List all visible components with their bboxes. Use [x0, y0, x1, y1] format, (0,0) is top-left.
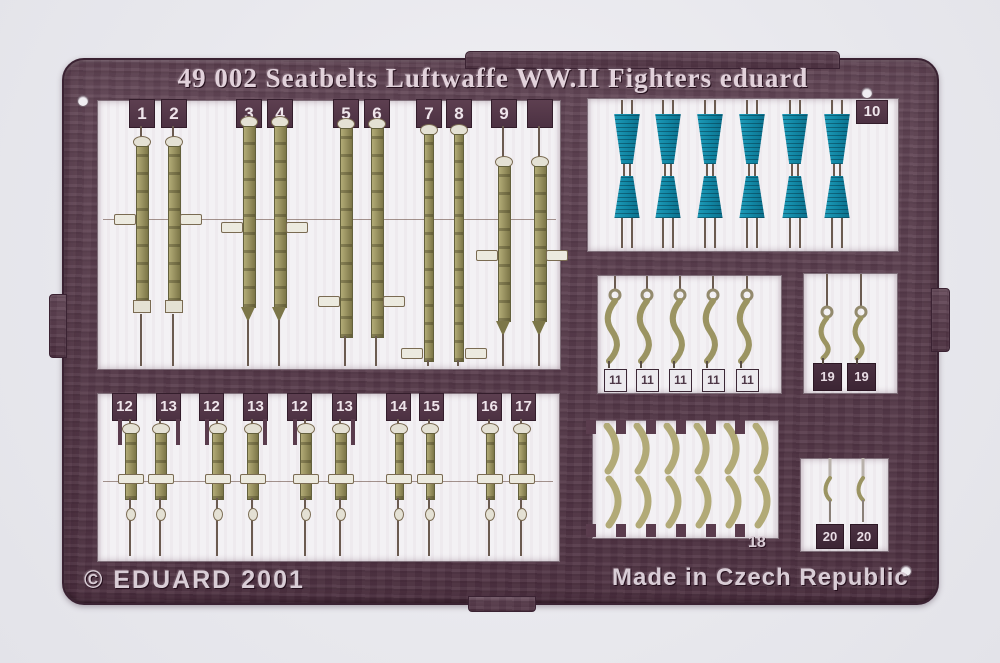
- pe-part-shape: [401, 348, 423, 359]
- part-number-tag: 12: [112, 393, 137, 421]
- pe-part-shape: [216, 498, 218, 556]
- pe-part-shape: [293, 474, 319, 484]
- pe-part-shape: [756, 218, 758, 248]
- pe-part-shape: [427, 360, 429, 366]
- part-number-label: 20: [816, 524, 844, 549]
- pe-part-shape: [534, 166, 547, 322]
- pe-part-shape: [221, 222, 243, 233]
- pe-part-shape: [660, 423, 686, 529]
- pe-part-shape: [600, 423, 626, 529]
- pe-part-shape: [180, 214, 202, 225]
- part-number-label: 11: [736, 369, 759, 392]
- part-number-tag: 12: [287, 393, 312, 421]
- pe-part-shape: [670, 164, 672, 176]
- pe-part-shape: [336, 508, 346, 521]
- pe-part-shape: [133, 300, 151, 313]
- pe-part-shape: [672, 100, 674, 114]
- pe-part-shape: [667, 276, 693, 368]
- pe-part-shape: [248, 508, 258, 521]
- part-number-tag: 13: [243, 393, 268, 421]
- pe-part-shape: [746, 218, 748, 248]
- pe-part-shape: [425, 508, 435, 521]
- part-number-label: 11: [669, 369, 692, 392]
- pe-part-shape: [502, 126, 504, 157]
- pe-part-shape: [634, 276, 660, 368]
- pe-part-shape: [371, 128, 384, 338]
- pe-part-shape: [383, 296, 405, 307]
- pe-part-shape: [247, 320, 249, 366]
- pe-part-shape: [428, 498, 430, 556]
- pe-part-shape: [129, 498, 131, 556]
- pe-part-shape: [426, 433, 435, 500]
- pe-part-shape: [286, 222, 308, 233]
- pe-part-shape: [520, 498, 522, 556]
- copyright-text: © EDUARD 2001: [84, 566, 305, 595]
- part-number-label: 18: [748, 534, 766, 552]
- pe-part-shape: [278, 320, 280, 366]
- fret-tab-left: [49, 294, 67, 358]
- pe-part-shape: [712, 164, 714, 176]
- pe-part-shape: [339, 498, 341, 556]
- part-number-label: 11: [636, 369, 659, 392]
- rivet-hole: [861, 87, 873, 99]
- pe-part-shape: [247, 433, 259, 500]
- pe-part-shape: [328, 474, 354, 484]
- part-number-label: 11: [702, 369, 725, 392]
- pe-part-shape: [118, 474, 144, 484]
- pe-part-shape: [457, 360, 459, 366]
- pe-part-shape: [351, 419, 355, 445]
- pe-part-shape: [700, 276, 726, 368]
- pe-part-shape: [853, 458, 873, 522]
- pe-part-shape: [706, 524, 716, 537]
- part-number-tag: 1: [129, 99, 155, 128]
- pe-part-shape: [517, 508, 527, 521]
- part-number-label: 19: [813, 363, 842, 391]
- part-number-tag: 13: [156, 393, 181, 421]
- pe-part-shape: [676, 420, 686, 434]
- pe-part-shape: [586, 524, 596, 537]
- pe-part-shape: [126, 508, 136, 521]
- pe-part-shape: [735, 420, 745, 434]
- pe-part-shape: [205, 474, 231, 484]
- pe-part-shape: [720, 423, 746, 529]
- pe-part-shape: [646, 524, 656, 537]
- pe-part-shape: [814, 274, 840, 364]
- pe-part-shape: [397, 498, 399, 556]
- product-photo-stage: 49 002 Seatbelts Luftwaffe WW.II Fighter…: [0, 0, 1000, 663]
- part-number-tag: 9: [491, 99, 517, 128]
- pe-part-shape: [646, 420, 656, 434]
- pe-part-shape: [518, 433, 527, 500]
- pe-part-shape: [243, 126, 256, 308]
- part-number-label: 20: [850, 524, 878, 549]
- pe-part-shape: [791, 164, 793, 176]
- pe-part-shape: [690, 423, 716, 529]
- pe-part-shape: [159, 498, 161, 556]
- pe-part-shape: [344, 336, 346, 366]
- pe-part-shape: [714, 218, 716, 248]
- pe-part-shape: [841, 218, 843, 248]
- pe-part-shape: [318, 296, 340, 307]
- pe-part-shape: [140, 314, 142, 366]
- pe-part-shape: [662, 100, 664, 114]
- pe-part-shape: [714, 100, 716, 114]
- pe-part-shape: [502, 334, 504, 366]
- pe-part-shape: [820, 458, 840, 522]
- pe-part-shape: [394, 508, 404, 521]
- pe-part-shape: [454, 134, 464, 362]
- pe-part-shape: [664, 164, 666, 176]
- pe-part-shape: [304, 498, 306, 556]
- pe-part-shape: [734, 276, 760, 368]
- pe-part-shape: [509, 474, 535, 484]
- pe-part-shape: [263, 419, 267, 445]
- part-number-tag: 2: [161, 99, 187, 128]
- pe-part-shape: [476, 250, 498, 261]
- pe-part-shape: [424, 134, 434, 362]
- pe-part-shape: [704, 100, 706, 114]
- pe-part-shape: [621, 100, 623, 114]
- part-number-tag: 12: [199, 393, 224, 421]
- pe-part-shape: [136, 146, 149, 302]
- pe-part-shape: [301, 508, 311, 521]
- pe-part-shape: [831, 100, 833, 114]
- pe-part-shape: [631, 218, 633, 248]
- pe-part-shape: [839, 164, 841, 176]
- rivet-hole: [77, 95, 89, 107]
- pe-part-shape: [386, 474, 412, 484]
- part-number-tag: 13: [332, 393, 357, 421]
- pe-part-shape: [676, 524, 686, 537]
- part-number-tag: 14: [386, 393, 411, 421]
- pe-part-shape: [831, 218, 833, 248]
- pe-part-shape: [538, 126, 540, 157]
- pe-part-shape: [623, 164, 625, 176]
- pe-part-shape: [546, 250, 568, 261]
- pe-part-shape: [125, 433, 137, 500]
- pe-part-shape: [375, 336, 377, 366]
- fret-tab-right: [931, 288, 950, 352]
- sheet-title: 49 002 Seatbelts Luftwaffe WW.II Fighter…: [83, 61, 903, 97]
- pe-part-shape: [754, 164, 756, 176]
- pe-part-shape: [629, 164, 631, 176]
- pe-part-shape: [848, 274, 874, 364]
- pe-part-shape: [165, 300, 183, 313]
- pe-part-shape: [799, 100, 801, 114]
- pe-part-shape: [672, 218, 674, 248]
- pe-part-shape: [485, 508, 495, 521]
- part-number-tag: [527, 99, 553, 128]
- pe-part-shape: [486, 433, 495, 500]
- pe-part-shape: [335, 433, 347, 500]
- made-in-text: Made in Czech Republic: [612, 564, 909, 592]
- pe-part-shape: [172, 314, 174, 366]
- pe-part-shape: [789, 100, 791, 114]
- pe-part-shape: [300, 433, 312, 500]
- pe-part-shape: [602, 276, 628, 368]
- fret-tab-bottom: [468, 596, 536, 612]
- pe-part-shape: [176, 419, 180, 445]
- pe-part-shape: [213, 508, 223, 521]
- pe-part-shape: [240, 474, 266, 484]
- pe-part-shape: [465, 348, 487, 359]
- part-number-tag: 17: [511, 393, 536, 421]
- pe-part-shape: [293, 419, 297, 445]
- pe-part-shape: [833, 164, 835, 176]
- pe-part-shape: [797, 164, 799, 176]
- part-number-label: 19: [847, 363, 876, 391]
- pe-part-shape: [630, 423, 656, 529]
- pe-part-shape: [621, 218, 623, 248]
- pe-part-shape: [746, 100, 748, 114]
- pe-part-shape: [586, 420, 596, 434]
- pe-part-shape: [114, 214, 136, 225]
- pe-part-shape: [706, 164, 708, 176]
- pe-part-shape: [662, 218, 664, 248]
- pe-part-shape: [417, 474, 443, 484]
- part-number-tag: 15: [419, 393, 444, 421]
- pe-part-shape: [274, 126, 287, 308]
- pe-part-shape: [748, 164, 750, 176]
- pe-part-shape: [706, 420, 716, 434]
- pe-part-shape: [155, 433, 167, 500]
- pe-part-shape: [789, 218, 791, 248]
- pe-part-shape: [395, 433, 404, 500]
- pe-part-shape: [631, 100, 633, 114]
- pe-part-shape: [735, 524, 745, 537]
- pe-part-shape: [156, 508, 166, 521]
- pe-part-shape: [841, 100, 843, 114]
- pe-part-shape: [538, 334, 540, 366]
- pe-part-shape: [799, 218, 801, 248]
- part-number-tag: 10: [856, 100, 888, 124]
- part-number-tag: 16: [477, 393, 502, 421]
- pe-part-shape: [756, 100, 758, 114]
- pe-part-shape: [616, 524, 626, 537]
- pe-part-shape: [251, 498, 253, 556]
- pe-part-shape: [205, 419, 209, 445]
- pe-part-shape: [749, 423, 775, 529]
- pe-part-shape: [704, 218, 706, 248]
- pe-part-shape: [212, 433, 224, 500]
- pe-part-shape: [148, 474, 174, 484]
- pe-part-shape: [168, 146, 181, 302]
- part-number-label: 11: [604, 369, 627, 392]
- pe-part-shape: [488, 498, 490, 556]
- pe-part-shape: [477, 474, 503, 484]
- pe-part-shape: [340, 128, 353, 338]
- pe-part-shape: [118, 419, 122, 445]
- pe-part-shape: [616, 420, 626, 434]
- pe-part-shape: [498, 166, 511, 322]
